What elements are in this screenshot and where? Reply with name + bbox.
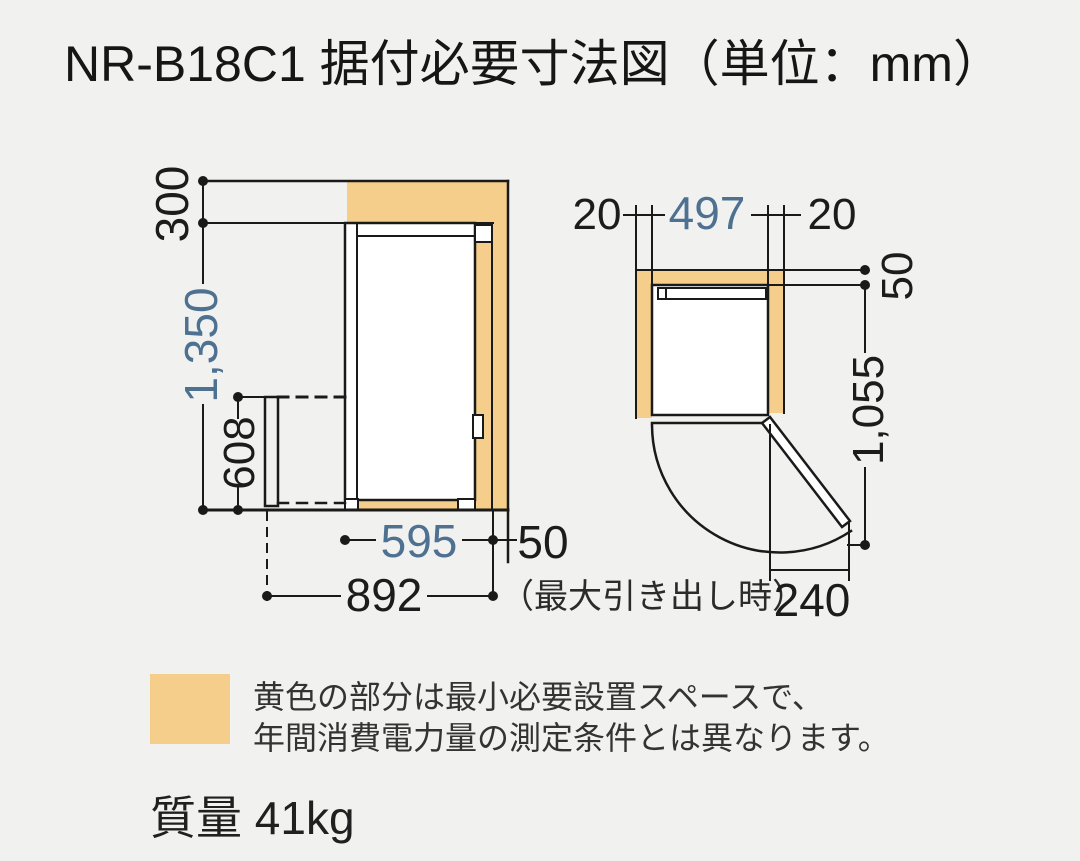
dim-rear-clearance-side: 50 [517, 519, 568, 565]
fridge-back-panel-plan [658, 288, 766, 299]
legend-yellow-swatch [150, 674, 230, 744]
fridge-body-side [345, 223, 475, 500]
fridge-body-plan [652, 285, 768, 415]
dim-rear-clearance-top: 50 [876, 252, 920, 301]
pullout-note: （最大引き出し時） [500, 580, 806, 614]
legend-note-line1: 黄色の部分は最小必要設置スペースで、 [253, 672, 824, 718]
fridge-back-detail [473, 415, 483, 438]
legend-note-line2: 年間消費電力量の測定条件とは異なります。 [253, 713, 890, 759]
top-view-drawing [624, 206, 870, 580]
dim-pullout-depth: 892 [346, 572, 423, 618]
fridge-leg-front [345, 499, 358, 510]
dim-door-open-clearance: 240 [774, 577, 851, 623]
side-view-drawing [198, 176, 516, 601]
dim-min-space-width: 497 [669, 190, 746, 236]
open-door-slab [762, 417, 850, 527]
dim-right-clearance: 20 [808, 193, 857, 237]
fridge-top-back-cap [475, 225, 492, 242]
fridge-leg-back [458, 499, 475, 510]
dim-min-space-height: 1,350 [178, 287, 224, 402]
weight-text: 質量 41kg [150, 782, 355, 848]
dim-body-depth: 595 [381, 518, 458, 564]
drawer-front-panel [265, 397, 278, 506]
dim-drawer-height: 608 [218, 416, 262, 489]
dim-top-clearance: 300 [149, 166, 195, 243]
installation-dimension-figure: NR-B18C1 据付必要寸法図（単位：mm） [0, 0, 1080, 861]
pulled-out-drawer [265, 397, 345, 600]
dim-left-clearance: 20 [573, 193, 622, 237]
dim-min-space-depth: 1,055 [847, 355, 891, 465]
